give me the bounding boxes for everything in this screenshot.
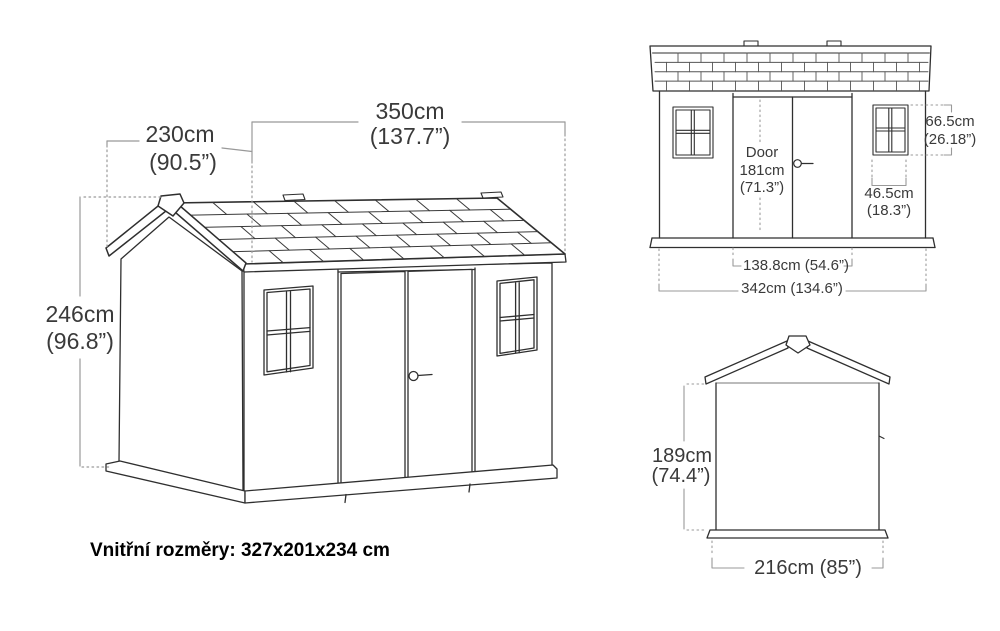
shed-dimension-diagram: 350cm (137.7”) 230cm (90.5”) 246cm (96.8… [0, 0, 1000, 631]
side-overall-width-label: 216cm (85”) [754, 557, 862, 579]
side-walls [716, 383, 884, 530]
iso-ridge-vent-2 [481, 192, 503, 198]
side-wall-height-in-label: (74.4”) [652, 465, 711, 487]
side-apex-cap [786, 336, 810, 353]
front-window-height-cm-label: 66.5cm [925, 114, 974, 131]
iso-length-cm-label: 350cm [375, 99, 444, 124]
front-window-width-in-label: (18.3”) [867, 203, 911, 220]
front-door-opening-width-label: 138.8cm (54.6”) [743, 258, 849, 275]
front-door-height-cm-label: 181cm [739, 163, 784, 180]
front-window-width-cm-label: 46.5cm [864, 186, 913, 203]
front-base [650, 238, 935, 248]
front-door-label: Door [746, 145, 779, 162]
iso-right-window [497, 277, 537, 356]
iso-ridge-vent-1 [283, 194, 305, 201]
iso-height-cm-label: 246cm [45, 302, 114, 327]
front-right-window [873, 105, 908, 155]
iso-gable-wall [119, 217, 243, 491]
side-wall-height-cm-label: 189cm [652, 445, 712, 467]
iso-depth-cm-label: 230cm [145, 122, 214, 147]
side-base [707, 530, 888, 538]
side-dimension-lines [684, 386, 883, 568]
front-window-height-in-label: (26.18”) [924, 132, 977, 149]
iso-height-in-label: (96.8”) [46, 329, 114, 354]
iso-left-window [264, 286, 313, 375]
iso-depth-in-label: (90.5”) [149, 150, 217, 175]
iso-shed-drawing [106, 192, 566, 503]
front-door-height-in-label: (71.3”) [740, 180, 784, 197]
front-overall-width-label: 342cm (134.6”) [741, 281, 843, 298]
internal-dimensions-text: Vnitřní rozměry: 327x201x234 cm [90, 540, 390, 562]
front-left-window [673, 107, 713, 158]
front-door-handle-icon [794, 160, 802, 168]
diagram-drawing [0, 0, 1000, 631]
side-roof [705, 336, 890, 384]
iso-length-in-label: (137.7”) [370, 124, 451, 149]
side-view-drawing [705, 336, 890, 538]
